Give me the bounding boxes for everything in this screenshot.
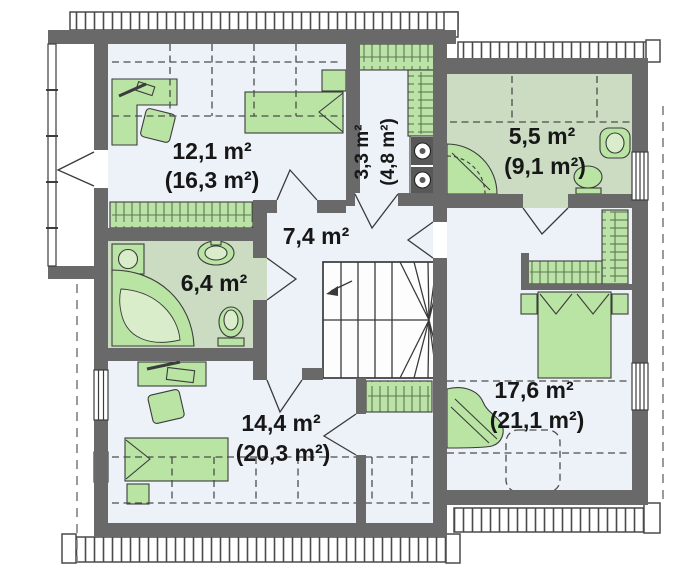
deck-band-top-left: [70, 12, 458, 30]
room-17-6-area-label: 17,6 m²: [494, 377, 574, 403]
bed-room-12-1: [245, 92, 343, 133]
washing-machine-door: [119, 250, 138, 269]
balcony-railing: [46, 44, 58, 266]
nightstand-room-14-4: [127, 484, 149, 504]
wall-west-lower-b: [94, 420, 108, 523]
desk-room-14-4: [138, 362, 206, 386]
room-17-6-gross-label: (21,1 m²): [490, 407, 585, 433]
wall-west-balcony-b: [94, 188, 108, 266]
room-14-4-gross-label: (20,3 m²): [236, 440, 331, 466]
room-6-4-area-label: 6,4 m²: [181, 270, 248, 296]
wall-balcony-bottom: [48, 266, 108, 279]
window-east-bedroom-17-6: [632, 363, 648, 410]
sink-6-4-basin: [205, 246, 227, 260]
wall-bottom-right-wing: [433, 490, 648, 505]
nightstand-right-bed-right: [612, 294, 628, 314]
wall-spine-upper: [433, 44, 447, 222]
toilet-5-5-tank: [576, 188, 601, 194]
wall-top-left-wing: [48, 30, 456, 44]
wall-bath-6-4-south: [94, 348, 267, 361]
wall-hall-south-stub: [302, 368, 323, 380]
room-12-1-area-label: 12,1 m²: [172, 138, 252, 164]
toilet-6-4-tank: [218, 338, 244, 346]
deck-band-bottom-right: [454, 508, 654, 532]
window-east-bathroom-5-5: [632, 152, 648, 200]
room-5-5-gross-label: (9,1 m²): [504, 153, 586, 179]
wall-west-balcony-a: [94, 44, 108, 150]
deck-band-bottom-left: [64, 537, 458, 562]
wall-bath-5-5-south-a: [447, 194, 523, 208]
window-west-room-14-4: [94, 370, 108, 420]
deck-band-top-right: [458, 42, 650, 60]
room-12-1-gross-label: (16,3 m²): [165, 167, 260, 193]
deck-band-bottom-right-cap: [644, 503, 660, 533]
wall-east-b: [632, 200, 648, 363]
wall-3-3-south-a: [346, 193, 355, 206]
room-3-3-gross-label: (4,8 m²): [378, 118, 399, 186]
room-5-5-area-label: 5,5 m²: [509, 123, 576, 149]
wall-hall-west-b: [253, 300, 267, 380]
room-14-4-area-label: 14,4 m²: [241, 410, 321, 436]
bed-room-14-4: [125, 438, 228, 481]
deck-band-bottom-left-cap-r: [446, 534, 460, 563]
wall-east-a: [632, 58, 648, 152]
washer-dryer-stack: [410, 136, 435, 195]
nightstand-right-bed-left: [521, 294, 537, 314]
wall-12-1-south-b: [317, 200, 346, 213]
wall-top-right-wing: [447, 58, 648, 74]
wall-bath-5-5-south-b: [568, 194, 632, 208]
sink-5-5-basin: [606, 133, 624, 153]
staircase: [323, 262, 435, 378]
toilet-6-4-bowl: [224, 310, 238, 330]
room-3-3-area-label: 3,3 m²: [352, 125, 373, 180]
wall-3-3-south-b: [398, 193, 435, 206]
wall-bath-6-4-north: [94, 228, 267, 241]
wall-nook-stub-lower: [356, 455, 366, 523]
wall-nook-stub-upper: [356, 378, 366, 414]
wall-bedroom-17-6-north: [521, 284, 632, 290]
floor-plan-canvas: 12,1 m² (16,3 m²) 3,3 m² (4,8 m²) 5,5 m²…: [0, 0, 700, 575]
hall-area-label: 7,4 m²: [283, 223, 350, 249]
deck-band-bottom-left-cap-l: [62, 534, 76, 563]
floor-plan-drawing: 12,1 m² (16,3 m²) 3,3 m² (4,8 m²) 5,5 m²…: [0, 0, 700, 575]
deck-band-top-right-cap: [646, 40, 660, 62]
nightstand-room-12-1: [322, 70, 346, 91]
wall-bottom-left-wing: [94, 523, 446, 537]
